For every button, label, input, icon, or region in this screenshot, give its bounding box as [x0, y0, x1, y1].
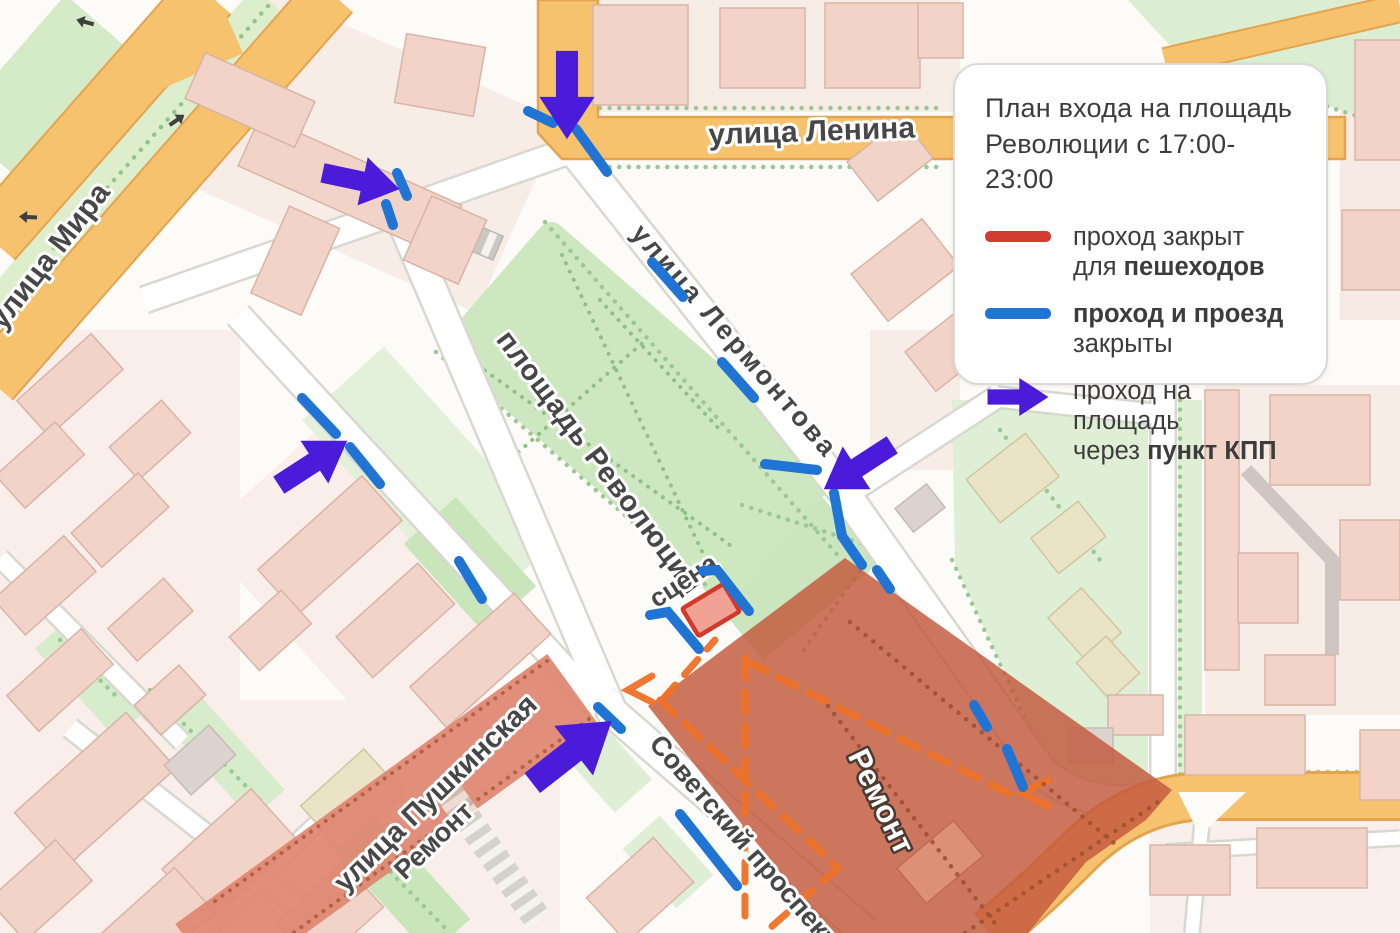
legend-title-line1: План входа на площадь — [985, 91, 1300, 127]
red-line-swatch — [985, 231, 1051, 242]
legend-item-closed-both: проход и проезд закрыты — [985, 299, 1300, 359]
legend-item1-line2-bold: пешеходов — [1124, 253, 1265, 281]
legend-item1-line1: проход закрыт — [1073, 223, 1244, 251]
kpp-arrow-icon — [985, 376, 1051, 418]
legend-item-closed-pedestrian: проход закрыт для пешеходов — [985, 222, 1300, 282]
legend-item1-line2-pre: для — [1073, 253, 1124, 281]
legend-item2-line2: закрыты — [1073, 330, 1173, 358]
legend-item3-line2-bold: пункт КПП — [1147, 437, 1277, 465]
legend-title: План входа на площадь Революции с 17:00-… — [985, 91, 1300, 198]
legend-item3-line1: проход на площадь — [1073, 377, 1191, 435]
legend-item3-line2-pre: через — [1073, 437, 1147, 465]
legend-item-kpp-entrance: проход на площадь через пункт КПП — [985, 376, 1300, 466]
blue-line-swatch — [985, 308, 1051, 319]
legend-item2-line1-bold: проход и проезд — [1073, 300, 1283, 328]
legend-card: План входа на площадь Революции с 17:00-… — [953, 63, 1328, 385]
legend-items: проход закрыт для пешеходов проход и про… — [985, 222, 1300, 467]
legend-title-line2: Революции с 17:00-23:00 — [985, 127, 1300, 198]
map-screenshot: улица Мира улица Ленина улица Лермонтова… — [0, 0, 1400, 933]
